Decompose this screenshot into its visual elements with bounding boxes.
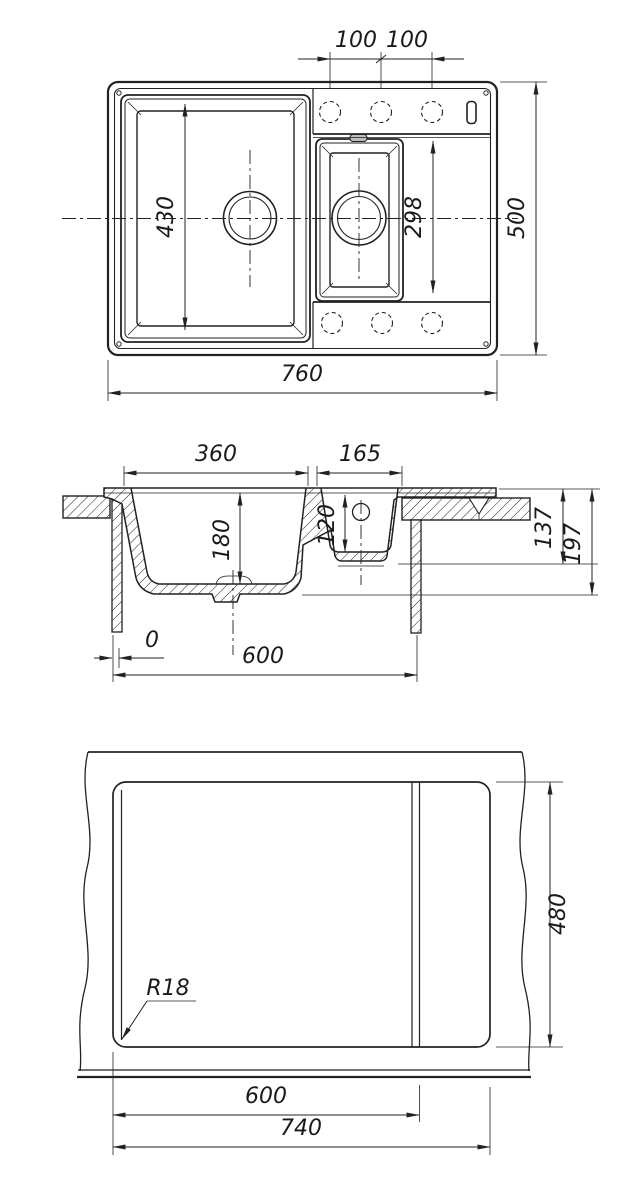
tap-hole [371,102,392,123]
worktop-break-left [80,752,90,1071]
tap-hole [372,313,393,334]
tap-hole [422,313,443,334]
overflow-slot [350,135,367,142]
corner-radius-callout: R18 [122,976,196,1039]
dim-label-600-cutout: 600 [245,1084,287,1109]
dim-label-360: 360 [195,442,237,467]
cabinet-wall-left [112,500,122,632]
dim-label-100-left: 100 [335,28,377,53]
dim-cutout-width-total: 740 [113,1087,490,1155]
top-view: 100 100 430 298 500 760 [62,28,547,401]
tap-hole [322,313,343,334]
dim-label-760: 760 [281,362,323,387]
dim-label-120: 120 [315,504,340,546]
cutout-view: R18 480 600 740 [77,752,571,1155]
dim-label-740: 740 [280,1116,322,1141]
dim-hole-spacing: 100 100 [298,28,464,88]
dim-overall-width: 500 [500,82,547,355]
dim-cutout-width-to-step: 600 [113,1052,420,1155]
main-drain-flange [216,576,252,584]
rim-corner-dot [484,91,488,95]
dim-label-100-right: 100 [386,28,428,53]
dim-label-180: 180 [210,519,235,561]
section-view: 360 165 180 120 137 197 [63,442,600,682]
dim-zero-offset: 0 [94,628,164,682]
dim-label-197: 197 [561,523,586,565]
dim-label-500: 500 [505,197,530,239]
rim-corner-dot [484,342,488,346]
worktop-break-right [520,752,530,1071]
worktop-right [402,498,530,520]
dim-label-r18: R18 [146,976,189,1001]
dim-left-bowl-length: 430 [154,104,185,330]
dim-main-bowl-width: 360 [124,442,308,486]
dim-right-section-length: 298 [402,141,433,293]
tap-hole [422,102,443,123]
dim-label-137: 137 [532,507,557,549]
dim-main-bowl-depth: 180 [210,493,240,584]
rim-corner-dot [117,342,121,346]
sink-technical-drawing: 100 100 430 298 500 760 [0,0,643,1200]
cutout-opening [113,782,490,1047]
cabinet-wall-right [411,520,421,633]
tap-hole [320,102,341,123]
dim-cutout-depth: 480 [496,782,571,1047]
dim-label-600-cabinet: 600 [242,644,284,669]
dim-label-480: 480 [546,893,571,935]
dim-small-bowl-width: 165 [317,442,402,486]
rim-corner-dot [117,91,121,95]
dim-label-0: 0 [145,628,159,653]
dim-label-430: 430 [154,196,179,238]
front-deck [313,302,490,349]
dim-label-165: 165 [339,442,381,467]
small-bowl [316,135,403,302]
drawing-sheet: 100 100 430 298 500 760 [0,0,643,1200]
dim-label-298: 298 [402,196,427,238]
rear-deck [313,89,490,138]
rear-slot [467,102,476,124]
worktop-left [63,496,110,518]
dim-overall-length: 760 [108,360,497,401]
